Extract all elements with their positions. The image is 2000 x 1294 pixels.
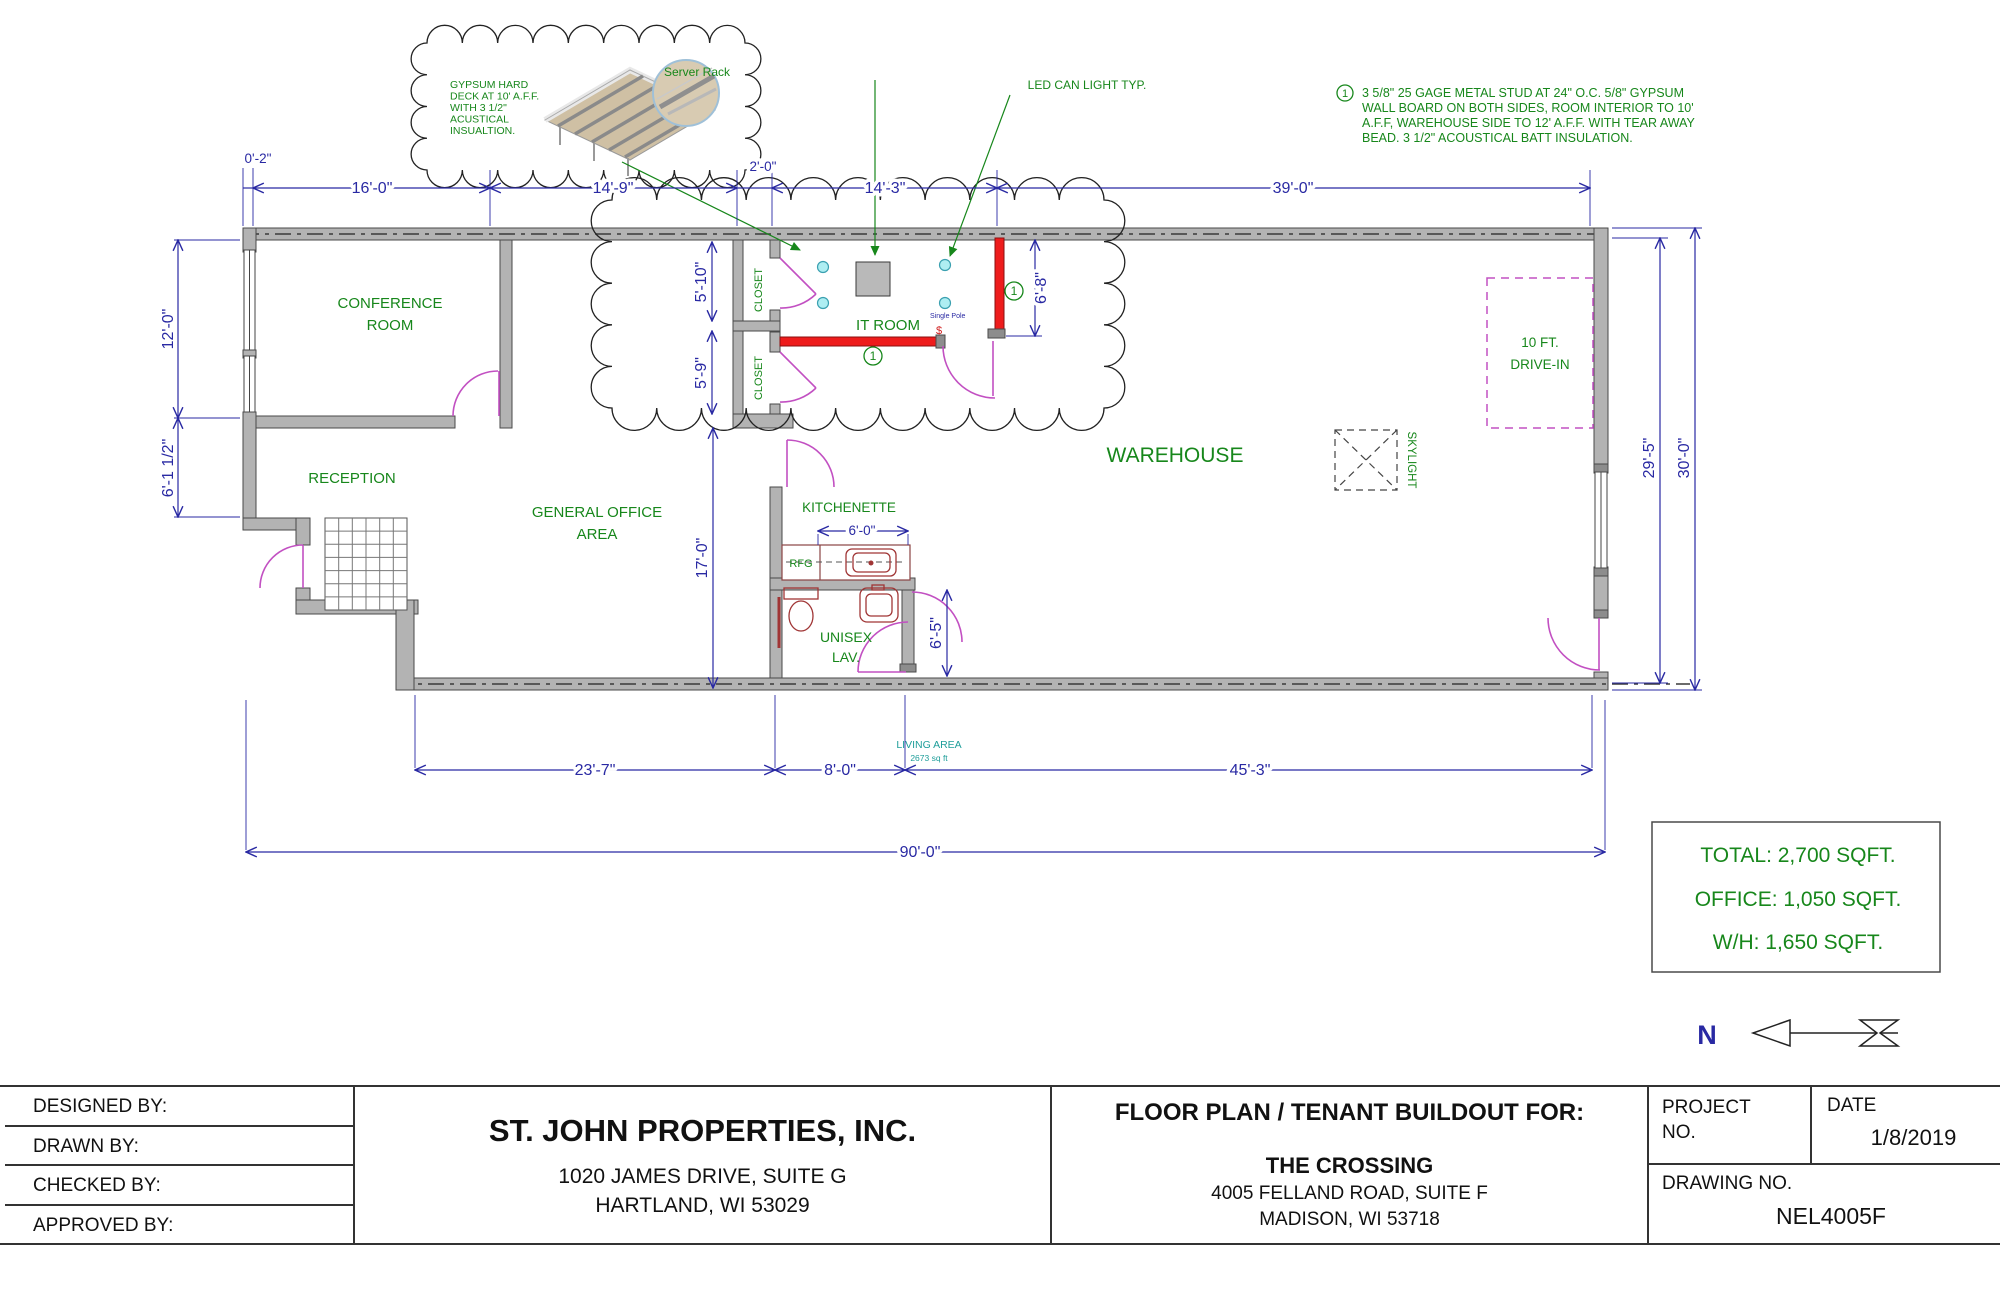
gypsum-note-line: ACUSTICAL [450,114,509,126]
dim-6-1-half: 6'-1 1/2" [160,439,177,498]
room-label-closet-lower: CLOSET [753,356,765,400]
dim-8-0: 8'-0" [824,762,856,779]
server-rack-symbol [856,262,890,296]
dim-6-0: 6'-0" [849,523,876,538]
label-living-area-sqft: 2673 sq ft [910,753,948,763]
label-rfg: RFG [789,558,812,570]
area-summary-box: TOTAL: 2,700 SQFT. OFFICE: 1,050 SQFT. W… [1652,822,1940,972]
designed-by-row: DESIGNED BY: [5,1087,353,1127]
area-warehouse: W/H: 1,650 SQFT. [1713,931,1883,954]
project-address-1: 4005 FELLAND ROAD, SUITE F [1052,1183,1647,1205]
room-label-general-office-1: GENERAL OFFICE [532,504,662,521]
entry-tile-grid [325,518,407,610]
project-no-label-1: PROJECT [1662,1095,1810,1120]
keynote-line: WALL BOARD ON BOTH SIDES, ROOM INTERIOR … [1362,101,1694,115]
company-address-1: 1020 JAMES DRIVE, SUITE G [357,1165,1048,1189]
project-no-label-2: NO. [1662,1120,1810,1145]
wall-tag-1: 1 [870,349,877,363]
room-label-it-room: IT ROOM [856,317,920,334]
company-name: ST. JOHN PROPERTIES, INC. [357,1113,1048,1149]
dim-0-2: 0'-2" [245,151,272,166]
keynote-marker: 1 [1342,88,1348,100]
project-no-cell: PROJECT NO. [1649,1087,1812,1163]
dim-45-3: 45'-3" [1230,762,1271,779]
room-label-reception: RECEPTION [308,470,396,487]
label-single-pole: Single Pole [930,313,966,320]
room-label-kitchenette: KITCHENETTE [802,500,896,515]
doors [260,258,1600,672]
gypsum-note-line: DECK AT 10' A.F.F. [450,91,539,103]
label-drive-in-1: 10 FT. [1521,335,1559,350]
dim-30-0: 30'-0" [1676,438,1693,479]
dim-14-9: 14'-9" [593,180,634,197]
gypsum-note-line: GYPSUM HARD [450,79,529,91]
company-address-2: HARTLAND, WI 53029 [357,1194,1048,1218]
dim-12-0: 12'-0" [160,309,177,350]
area-total: TOTAL: 2,700 SQFT. [1700,844,1895,867]
drawn-by-row: DRAWN BY: [5,1127,353,1167]
dim-5-10: 5'-10" [693,262,710,303]
floor-plan-sheet: CONFERENCE ROOM RECEPTION GENERAL OFFICE… [0,0,2000,1294]
room-label-unisex-2: LAV. [832,649,860,665]
exterior-walls [243,228,1690,690]
date-label: DATE [1827,1095,2000,1117]
area-office: OFFICE: 1,050 SQFT. [1695,888,1902,911]
project-heading: FLOOR PLAN / TENANT BUILDOUT FOR: [1052,1099,1647,1127]
label-living-area: LIVING AREA [896,739,961,751]
floor-plan-drawing: CONFERENCE ROOM RECEPTION GENERAL OFFICE… [0,0,2000,1085]
room-label-warehouse: WAREHOUSE [1107,444,1244,467]
north-label: N [1697,1020,1717,1050]
wall-tag-1: 1 [1011,284,1018,298]
company-block: ST. JOHN PROPERTIES, INC. 1020 JAMES DRI… [357,1087,1048,1243]
drawing-no-label: DRAWING NO. [1662,1173,2000,1195]
dim-23-7: 23'-7" [575,762,616,779]
gypsum-note: GYPSUM HARD DECK AT 10' A.F.F. WITH 3 1/… [450,79,539,137]
dim-6-5: 6'-5" [928,617,945,649]
keynote-line: A.F.F, WAREHOUSE SIDE TO 12' A.F.F. WITH… [1362,116,1695,130]
drawing-no-value: NEL4005F [1662,1203,2000,1230]
date-value: 1/8/2019 [1827,1125,2000,1151]
date-cell: DATE 1/8/2019 [1814,1087,2000,1171]
project-block: FLOOR PLAN / TENANT BUILDOUT FOR: THE CR… [1050,1087,1647,1243]
skylight-symbol [1335,430,1397,490]
gypsum-note-line: INSUALTION. [450,125,515,137]
title-block-signoff-column: DESIGNED BY: DRAWN BY: CHECKED BY: APPRO… [5,1087,355,1243]
label-drive-in-2: DRIVE-IN [1510,357,1569,372]
project-meta-block: PROJECT NO. DATE 1/8/2019 DRAWING NO. NE… [1647,1087,2000,1243]
drawing-no-cell: DRAWING NO. NEL4005F [1649,1165,2000,1245]
label-server-rack: Server Rack [664,65,731,79]
dim-39-0: 39'-0" [1273,180,1314,197]
room-label-general-office-2: AREA [577,526,618,543]
project-name: THE CROSSING [1052,1153,1647,1179]
dim-5-9: 5'-9" [693,357,710,389]
dim-90-0: 90'-0" [900,844,941,861]
title-block: DESIGNED BY: DRAWN BY: CHECKED BY: APPRO… [0,1085,2000,1245]
dim-14-3: 14'-3" [865,180,906,197]
dim-29-5: 29'-5" [1641,438,1658,479]
north-arrow: N [1697,1020,1898,1050]
keynote-line: BEAD. 3 1/2" ACOUSTICAL BATT INSULATION. [1362,131,1633,145]
room-label-closet-upper: CLOSET [753,268,765,312]
gypsum-note-line: WITH 3 1/2" [450,102,507,114]
keynote-line: 3 5/8" 25 GAGE METAL STUD AT 24" O.C. 5/… [1362,86,1684,100]
drive-in-door-outline [1487,278,1593,428]
room-label-conference-1: CONFERENCE [337,295,442,312]
project-address-2: MADISON, WI 53718 [1052,1209,1647,1231]
dim-6-8: 6'-8" [1033,272,1050,304]
room-label-unisex-1: UNISEX [820,629,873,645]
room-label-conference-2: ROOM [367,317,414,334]
checked-by-row: CHECKED BY: [5,1166,353,1206]
approved-by-row: APPROVED BY: [5,1206,353,1246]
switch-symbol: $ [936,325,942,337]
keynote-1: 1 3 5/8" 25 GAGE METAL STUD AT 24" O.C. … [1337,85,1695,145]
dim-16-0: 16'-0" [352,180,393,197]
label-led-can-light: LED CAN LIGHT TYP. [1028,78,1147,92]
north-arrowhead [1753,1020,1790,1046]
dim-17-0: 17'-0" [694,538,711,579]
label-skylight: SKYLIGHT [1405,432,1417,489]
dim-2-0: 2'-0" [750,159,777,174]
